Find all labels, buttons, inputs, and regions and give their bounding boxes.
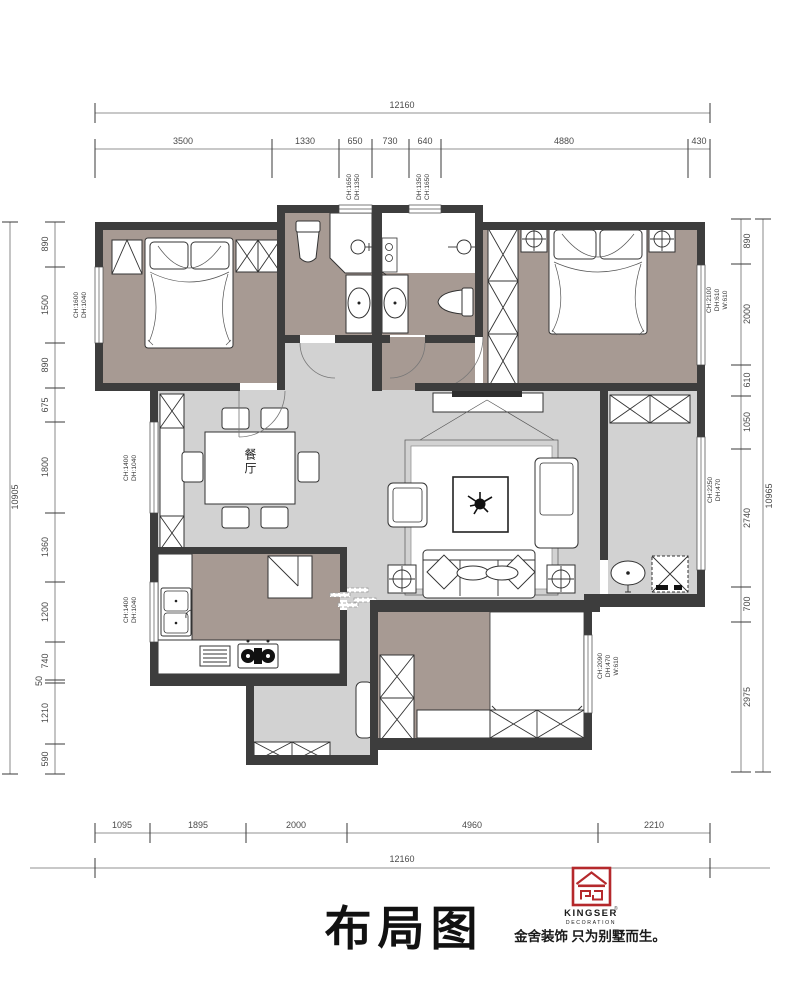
bed-icon [549, 226, 647, 335]
window-label: CH:2100 [706, 287, 713, 313]
dining-room-label: 餐厅 [243, 447, 257, 476]
window-icon [339, 205, 372, 213]
washing-machine-icon [652, 556, 688, 592]
wardrobe-icon [112, 240, 142, 274]
dim-bottom-seg: 4960 [462, 820, 482, 830]
page-title: 布局图 [325, 902, 484, 955]
window-label: W:610 [613, 656, 620, 675]
window-label: CH:1650 [424, 174, 431, 200]
dim-top-seg: 430 [691, 136, 706, 146]
pillow-icon [191, 242, 229, 269]
hall-floor [285, 343, 372, 390]
chair-icon [222, 408, 249, 429]
sofa-icon [423, 550, 535, 598]
dim-left-seg: 50 [34, 676, 44, 686]
floor-plan-drawing: 餐厅 [0, 0, 800, 981]
tv-icon [452, 391, 522, 397]
dim-bottom-seg: 1095 [112, 820, 132, 830]
window-label: DH:470 [715, 478, 722, 501]
dim-right-total: 10965 [764, 483, 774, 508]
logo-spiral-icon [593, 891, 602, 900]
dim-right-seg: 1050 [742, 412, 752, 432]
dim-top-total: 12160 [389, 100, 414, 110]
cabinet-icon [417, 710, 490, 738]
dim-top-seg: 650 [347, 136, 362, 146]
coffee-table [453, 477, 508, 532]
sink-icon [346, 275, 372, 333]
registered-mark: ® [614, 905, 618, 912]
dim-left-seg: 1200 [40, 602, 50, 622]
window-label: CH:1600 [73, 292, 80, 318]
window-label: CH:2090 [597, 653, 604, 679]
window-label: CH:2250 [707, 477, 714, 503]
chair-icon [261, 408, 288, 429]
logo-brand: KINGSER [564, 908, 618, 919]
dim-right-seg: 2000 [742, 304, 752, 324]
window-label: CH:1650 [346, 174, 353, 200]
shower-zone [330, 213, 372, 273]
dim-right-seg: 700 [742, 596, 752, 611]
cushion-icon [486, 566, 518, 580]
logo-tagline: 金舍装饰 只为别墅而生。 [513, 928, 666, 944]
window-icon [697, 437, 705, 570]
chair-icon [222, 507, 249, 528]
toilet-icon [296, 221, 320, 262]
kitchen-sink-icon [161, 588, 191, 636]
dimension-left: 10905 890 1500 890 675 1800 1360 1200 74… [2, 222, 65, 774]
dim-top-seg: 4880 [554, 136, 574, 146]
kingser-logo [573, 868, 610, 905]
window-icon [150, 422, 158, 513]
bed-icon [145, 238, 233, 348]
dimension-right: 890 2000 610 1050 2740 700 2975 10965 [731, 219, 774, 772]
dim-left-seg: 590 [40, 751, 50, 766]
cabinet-icon [160, 394, 184, 550]
cushion-icon [457, 566, 489, 580]
pillow-icon [150, 242, 188, 269]
dim-bottom-seg: 2210 [644, 820, 664, 830]
dim-left-seg: 1360 [40, 537, 50, 557]
window-icon [409, 205, 441, 213]
dim-right-seg: 2975 [742, 687, 752, 707]
dim-left-seg: 890 [40, 357, 50, 372]
logo-sub: DECORATION [566, 920, 616, 926]
window-icon [150, 582, 158, 642]
dim-right-seg: 890 [742, 233, 752, 248]
title-block: 布局图 KINGSER ® DECORATION 金舍装饰 只为别墅而生。 [325, 868, 666, 955]
dim-bottom-seg: 1895 [188, 820, 208, 830]
pillow-icon [554, 230, 596, 259]
window-label: DH:1350 [416, 174, 423, 200]
window-label: DH:610 [714, 288, 721, 311]
window-label: DH:1040 [131, 597, 138, 623]
dim-left-seg: 1210 [40, 703, 50, 723]
chair-icon [261, 507, 288, 528]
dim-left-seg: 1500 [40, 295, 50, 315]
window-label: W:610 [722, 290, 729, 309]
stove-icon [238, 640, 278, 669]
window-icon [95, 267, 103, 343]
dim-left-seg: 740 [40, 653, 50, 668]
logo-spiral-icon [581, 891, 590, 900]
sink-icon [382, 275, 408, 333]
side-table-icon [547, 565, 575, 593]
dim-right-seg: 2740 [742, 508, 752, 528]
vestibule-floor [382, 337, 475, 390]
chair-icon [298, 452, 319, 482]
corridor-floor [347, 600, 370, 680]
dimension-top: 12160 3500 1330 650 730 640 4880 430 [95, 100, 710, 178]
window-label: CH:1400 [123, 455, 130, 481]
window-label: DH:470 [605, 654, 612, 677]
dim-top-seg: 640 [417, 136, 432, 146]
chair-icon [182, 452, 203, 482]
dim-left-total: 10905 [10, 484, 20, 509]
window-icon [697, 265, 705, 365]
logo-roof-icon [577, 873, 607, 885]
dim-top-seg: 730 [382, 136, 397, 146]
dim-left-seg: 1800 [40, 457, 50, 477]
dim-top-seg: 3500 [173, 136, 193, 146]
window-label: CH:1400 [123, 597, 130, 623]
window-icon [584, 635, 592, 713]
bed-icon [490, 612, 584, 712]
dim-bottom-seg: 2000 [286, 820, 306, 830]
dim-left-seg: 675 [40, 397, 50, 412]
floor-plan-sheet: 餐厅 [0, 0, 800, 981]
vent-icon [200, 646, 230, 666]
fridge-icon [268, 556, 312, 598]
side-table-icon [388, 565, 416, 593]
dim-left-seg: 890 [40, 236, 50, 251]
dim-top-seg: 1330 [295, 136, 315, 146]
pillow-icon [600, 230, 642, 259]
window-label: DH:1040 [81, 292, 88, 318]
dimension-bottom: 1095 1895 2000 4960 2210 12160 [30, 820, 770, 878]
window-label: DH:1040 [131, 455, 138, 481]
window-label: DH:1350 [354, 174, 361, 200]
dim-right-seg: 610 [742, 372, 752, 387]
dim-bottom-total: 12160 [389, 854, 414, 864]
